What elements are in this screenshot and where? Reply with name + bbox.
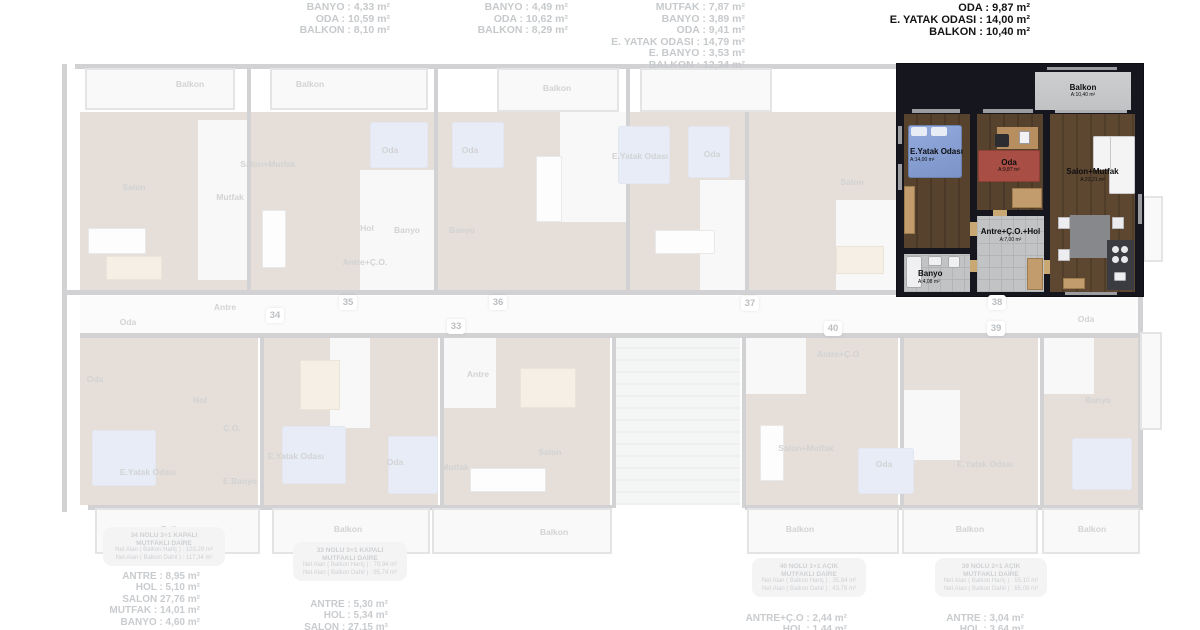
plan-sofa — [470, 468, 546, 492]
sink — [1114, 272, 1126, 281]
plan-bed — [370, 122, 428, 168]
kitchen-cabinet — [1063, 278, 1085, 289]
room-label: Oda — [1001, 158, 1017, 167]
room-area: A:7,00 m² — [977, 237, 1044, 243]
apartment-info-badge-40: 40 NOLU 1+1 AÇIKMUTFAKLI DAİRENet Alan (… — [752, 558, 866, 597]
plan-table — [520, 368, 576, 408]
monitor — [1019, 131, 1030, 144]
window-icon — [1065, 292, 1117, 295]
room-living-kitchen: Salon+Mutfak A:23,21 m² — [1050, 114, 1135, 292]
plan-room-label: Balkon — [334, 525, 362, 534]
plan-room-label: Oda — [87, 375, 104, 384]
plan-room-label: Salon — [538, 448, 561, 457]
plan-sofa — [760, 425, 784, 481]
sofa — [1093, 136, 1111, 170]
plan-room-label: Salon+Mutfak — [778, 444, 834, 453]
room-area: A:9,87 m² — [998, 167, 1020, 173]
room-master-bedroom: E.Yatak Odası A:14,00 m² — [904, 114, 970, 248]
single-bed: Oda A:9,87 m² — [978, 150, 1040, 182]
plan-room-label: Balkon — [1078, 525, 1106, 534]
plan-balc — [640, 68, 772, 112]
chair — [1058, 217, 1070, 229]
room-hall: Antre+Ç.O.+Hol A:7,00 m² — [977, 216, 1044, 292]
room-label: Balkon — [1070, 83, 1097, 92]
plan-room-label: Hol — [360, 224, 374, 233]
room-area: A:23,21 m² — [1050, 177, 1135, 183]
plan-room-label: E.Banyo — [223, 477, 257, 486]
window-icon — [1047, 67, 1117, 70]
area-list-faded-1: BANYO : 4,33 m²ODA : 10,59 m²BALKON : 8,… — [300, 2, 390, 37]
plan-sofa — [536, 156, 562, 222]
window-icon — [1138, 194, 1142, 224]
plan-balc — [747, 508, 899, 554]
kitchen-counter — [1107, 240, 1134, 290]
sink — [928, 256, 942, 266]
plan-tile — [560, 112, 626, 222]
plan-sofa — [88, 228, 146, 254]
wardrobe — [904, 186, 915, 234]
floor-plan-page: BalkonBalkonBalkonSalonMutfakSalon+Mutfa… — [0, 0, 1200, 630]
area-list-selected: ODA : 9,87 m²E. YATAK ODASI : 14,00 m²BA… — [890, 2, 1030, 38]
plan-balc — [1143, 196, 1163, 262]
plan-wall — [62, 64, 67, 512]
window-icon — [983, 109, 1033, 113]
room-label: Antre+Ç.O.+Hol — [981, 227, 1041, 236]
door — [970, 260, 977, 272]
plan-table — [300, 360, 340, 410]
plan-room-label: Oda — [382, 146, 399, 155]
plan-room-label: E.Yatak Odası — [957, 460, 1013, 469]
plan-stair — [616, 338, 740, 505]
chair — [1058, 249, 1070, 261]
selected-unit[interactable]: Balkon A:10,40 m² E.Yatak Odası A:14,00 … — [897, 64, 1143, 296]
door — [1044, 260, 1050, 274]
unit-badge-38[interactable]: 38 — [988, 295, 1006, 310]
plan-room-label: Balkon — [176, 80, 204, 89]
plan-room-label: E.Yatak Odası — [612, 152, 668, 161]
plan-room-label: Oda — [120, 318, 137, 327]
plan-room-label: Balkon — [540, 528, 568, 537]
plan-room-label: Ç.O. — [223, 424, 240, 433]
plan-room-label: Salon — [122, 183, 145, 192]
apartment-area-list-34: ANTRE : 8,95 m²HOL : 5,10 m²SALON 27,76 … — [109, 571, 200, 628]
room-balkon: Balkon A:10,40 m² — [1035, 72, 1131, 110]
plan-room-label: Banyo — [394, 226, 420, 235]
plan-room-label: Balkon — [956, 525, 984, 534]
apartment-area-list-33: ANTRE : 5,30 m²HOL : 5,34 m²SALON : 27,1… — [304, 599, 388, 630]
door — [993, 210, 1007, 216]
plan-room-label: E.Yatak Odası — [268, 452, 324, 461]
plan-corr — [80, 296, 1138, 333]
plan-tile — [746, 338, 806, 394]
room-label: E.Yatak Odası — [910, 147, 963, 156]
dining-table — [1070, 215, 1110, 258]
plan-bed — [92, 430, 156, 486]
plan-room-label: Banyo — [449, 226, 475, 235]
apartment-area-list-39: ANTRE : 3,04 m²HOL : 3,64 m² — [946, 613, 1024, 630]
plan-room-label: Oda — [876, 460, 893, 469]
plan-sofa — [655, 230, 715, 254]
plan-tile — [1044, 338, 1094, 394]
plan-room-label: Antre+Ç.O — [817, 350, 859, 359]
plan-room-label: Balkon — [296, 80, 324, 89]
apartment-info-badge-39: 39 NOLU 2+1 AÇIKMUTFAKLI DAİRENet Alan (… — [935, 558, 1047, 597]
unit-badge-35[interactable]: 35 — [339, 295, 357, 310]
plan-room-label: Antre+Ç.O. — [343, 258, 388, 267]
plan-room-label: Salon — [840, 178, 863, 187]
area-list-faded-3: MUTFAK : 7,87 m²BANYO : 3,89 m²ODA : 9,4… — [611, 2, 745, 72]
cabinet — [1027, 258, 1043, 290]
wardrobe — [1012, 188, 1042, 208]
room-bedroom: Oda A:9,87 m² — [977, 114, 1043, 210]
plan-sofa — [262, 210, 286, 268]
plan-room-label: Banyo — [1085, 396, 1111, 405]
plan-balc — [1140, 332, 1162, 430]
unit-badge-37[interactable]: 37 — [741, 296, 759, 311]
room-area: A:4,08 m² — [918, 279, 942, 285]
plan-room-label: Hol — [193, 396, 207, 405]
plan-bed — [858, 448, 914, 494]
plan-room-label: Oda — [704, 150, 721, 159]
room-label: Banyo — [918, 269, 942, 278]
window-icon — [898, 164, 902, 190]
plan-table — [836, 246, 884, 274]
plan-room-label: Mutfak — [216, 193, 243, 202]
apartment-info-badge-34: 34 NOLU 3+1 KAPALIMUTFAKLI DAİRENet Alan… — [103, 527, 225, 566]
unit-badge-36[interactable]: 36 — [489, 295, 507, 310]
room-label: Salon+Mutfak — [1066, 167, 1118, 176]
toilet — [948, 256, 960, 268]
plan-balc — [432, 508, 612, 554]
plan-room-label: Oda — [387, 458, 404, 467]
window-icon — [912, 109, 960, 113]
area-list-faded-2: BANYO : 4,49 m²ODA : 10,62 m²BALKON : 8,… — [478, 2, 568, 37]
unit-badge-34[interactable]: 34 — [266, 308, 284, 323]
plan-tile — [836, 200, 902, 290]
apartment-info-badge-33: 33 NOLU 3+1 KAPALIMUTFAKLI DAİRENet Alan… — [293, 542, 407, 581]
chair — [995, 134, 1009, 147]
room-area: A:14,00 m² — [910, 157, 963, 163]
plan-table — [106, 256, 162, 280]
plan-bed — [1072, 438, 1132, 490]
plan-room-label: Salon+Mutfak — [240, 160, 296, 169]
plan-room-label: Mutfak — [441, 463, 468, 472]
unit-badge-39[interactable]: 39 — [987, 321, 1005, 336]
door — [970, 222, 977, 236]
plan-room-label: Antre — [214, 303, 236, 312]
room-bathroom: Banyo A:4,08 m² — [904, 254, 970, 292]
plan-room-label: Balkon — [786, 525, 814, 534]
room-area: A:10,40 m² — [1070, 92, 1097, 98]
plan-balc — [85, 68, 235, 110]
window-icon — [898, 126, 902, 144]
unit-badge-40[interactable]: 40 — [824, 321, 842, 336]
sofa — [1109, 136, 1135, 194]
plan-room-label: Antre — [467, 370, 489, 379]
plan-balc — [270, 68, 428, 110]
apartment-area-list-40: ANTRE+Ç.O : 2,44 m²HOL : 1,44 m² — [746, 613, 847, 630]
plan-room-label: Balkon — [543, 84, 571, 93]
plan-room-label: Oda — [1078, 315, 1095, 324]
plan-room-label: E.Yatak Odası — [120, 468, 176, 477]
plan-room-label: Oda — [462, 146, 479, 155]
chair — [1112, 217, 1124, 229]
unit-badge-33[interactable]: 33 — [447, 319, 465, 334]
